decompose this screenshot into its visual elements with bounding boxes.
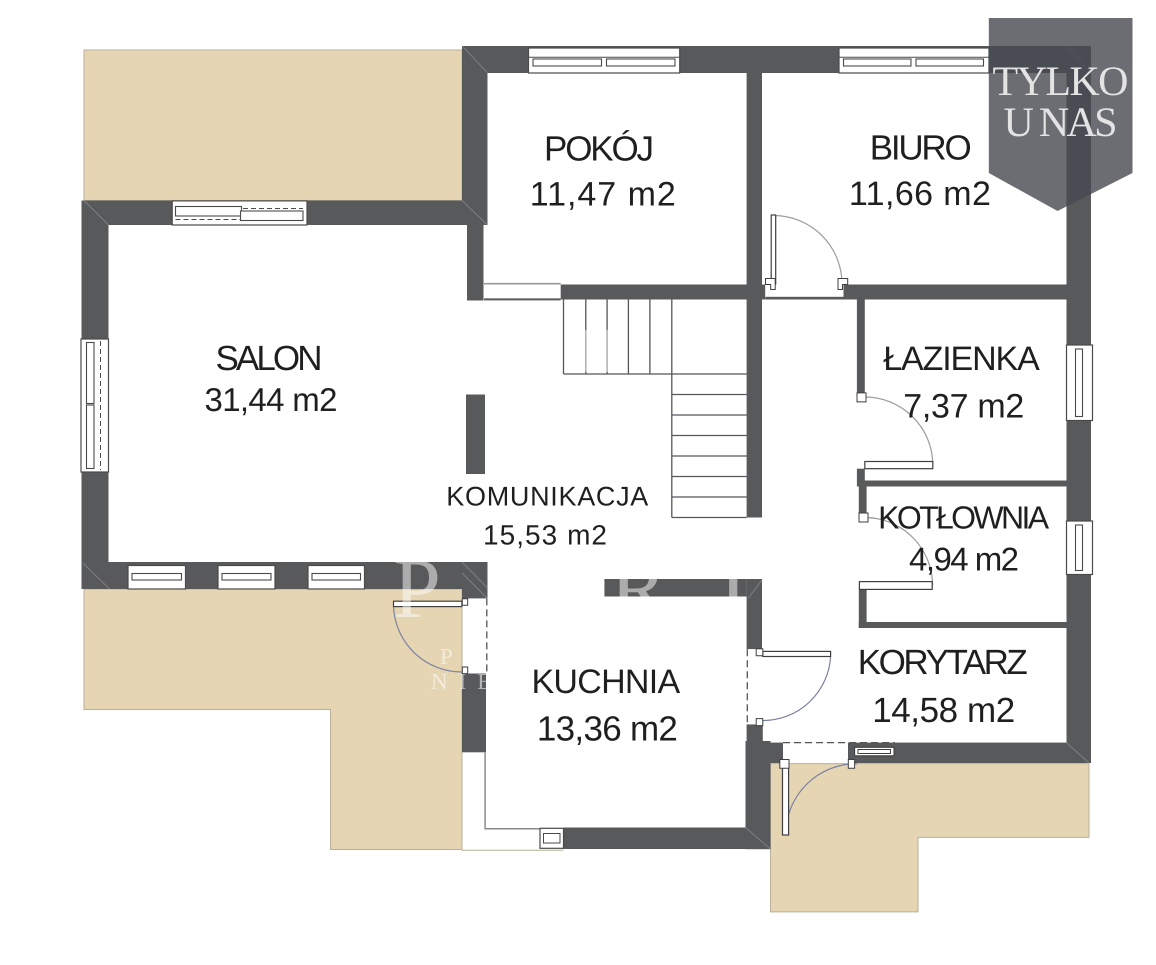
svg-text:13,36 m2: 13,36 m2 bbox=[537, 710, 678, 749]
svg-text:31,44 m2: 31,44 m2 bbox=[205, 381, 338, 418]
svg-text:P: P bbox=[393, 540, 441, 636]
svg-text:ŁAZIENKA: ŁAZIENKA bbox=[883, 340, 1040, 378]
svg-text:7,37 m2: 7,37 m2 bbox=[903, 388, 1024, 426]
svg-text:T: T bbox=[707, 540, 760, 636]
svg-text:KOMUNIKACJA: KOMUNIKACJA bbox=[446, 482, 648, 512]
svg-text:14,58 m2: 14,58 m2 bbox=[872, 691, 1015, 730]
svg-text:11,47 m2: 11,47 m2 bbox=[530, 176, 676, 214]
svg-text:R: R bbox=[610, 540, 668, 636]
svg-text:4,94 m2: 4,94 m2 bbox=[909, 540, 1019, 577]
svg-text:11,66 m2: 11,66 m2 bbox=[849, 175, 991, 213]
svg-text:KUCHNIA: KUCHNIA bbox=[531, 663, 680, 701]
svg-text:NIE: NIE bbox=[431, 669, 502, 694]
svg-text:BIURO: BIURO bbox=[870, 129, 972, 168]
svg-text:TYLKO: TYLKO bbox=[993, 59, 1129, 105]
svg-text:P: P bbox=[440, 644, 453, 669]
svg-text:15,53 m2: 15,53 m2 bbox=[483, 520, 607, 551]
svg-text:KORYTARZ: KORYTARZ bbox=[858, 643, 1028, 682]
svg-text:SALON: SALON bbox=[216, 339, 323, 378]
svg-text:A: A bbox=[498, 540, 560, 636]
svg-text:KOTŁOWNIA: KOTŁOWNIA bbox=[878, 500, 1050, 536]
svg-text:POKÓJ: POKÓJ bbox=[544, 129, 654, 168]
svg-text:U NAS: U NAS bbox=[1004, 100, 1118, 146]
